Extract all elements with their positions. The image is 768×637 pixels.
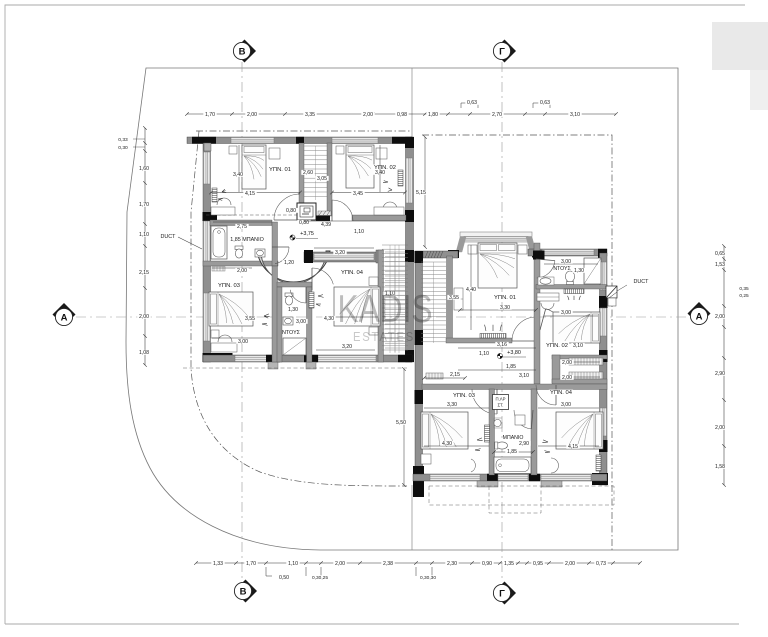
svg-text:0,73: 0,73 [596, 561, 606, 567]
svg-text:4,15: 4,15 [568, 444, 578, 450]
svg-text:2,15: 2,15 [139, 270, 149, 276]
svg-text:5,50: 5,50 [396, 420, 406, 426]
svg-text:2,00: 2,00 [562, 375, 572, 381]
svg-text:0,33: 0,33 [118, 137, 128, 143]
svg-text:3,10: 3,10 [573, 343, 583, 349]
svg-text:2,15: 2,15 [450, 372, 460, 378]
svg-text:3,00: 3,00 [561, 402, 571, 408]
svg-text:3,45: 3,45 [353, 191, 363, 197]
svg-text:2,00: 2,00 [335, 561, 345, 567]
svg-text:0,30,30: 0,30,30 [420, 575, 436, 581]
svg-text:0,35: 0,35 [739, 286, 749, 292]
svg-text:2,75: 2,75 [237, 224, 247, 230]
svg-text:4,39: 4,39 [321, 222, 331, 228]
svg-text:1,10: 1,10 [288, 561, 298, 567]
svg-text:1,10: 1,10 [139, 232, 149, 238]
svg-text:0,50: 0,50 [279, 575, 289, 581]
svg-text:0,30: 0,30 [118, 145, 128, 151]
svg-text:3,55: 3,55 [245, 316, 255, 322]
svg-text:4,30: 4,30 [442, 441, 452, 447]
svg-text:Γ: Γ [499, 588, 505, 599]
svg-text:A: A [61, 312, 68, 323]
svg-text:0,80: 0,80 [286, 208, 296, 214]
svg-text:2,00: 2,00 [139, 314, 149, 320]
svg-text:2,00: 2,00 [562, 360, 572, 366]
svg-text:2,00: 2,00 [715, 314, 725, 320]
svg-text:1,20: 1,20 [284, 260, 294, 266]
svg-text:1,53: 1,53 [715, 262, 725, 268]
svg-text:3,00: 3,00 [238, 339, 248, 345]
svg-text:3,16: 3,16 [497, 342, 507, 348]
svg-text:1,35: 1,35 [504, 561, 514, 567]
svg-text:0,98: 0,98 [397, 112, 407, 118]
svg-text:1,60: 1,60 [139, 166, 149, 172]
svg-text:DUCT: DUCT [161, 234, 177, 240]
svg-text:ΣΤ.: ΣΤ. [497, 403, 503, 408]
svg-text:3,00: 3,00 [561, 259, 571, 265]
svg-text:1,85 ΜΠΑΝΙΟ: 1,85 ΜΠΑΝΙΟ [230, 237, 264, 243]
svg-text:3,55: 3,55 [449, 295, 459, 301]
svg-text:1,85: 1,85 [506, 364, 516, 370]
svg-text:1,30: 1,30 [288, 307, 298, 313]
svg-text:B: B [240, 586, 247, 597]
svg-text:4,15: 4,15 [245, 191, 255, 197]
svg-text:0,63: 0,63 [467, 100, 477, 106]
svg-text:2,30: 2,30 [447, 561, 457, 567]
svg-text:1,80: 1,80 [428, 112, 438, 118]
svg-text:+3,80: +3,80 [507, 350, 521, 356]
svg-text:1,70: 1,70 [246, 561, 256, 567]
svg-text:3,00: 3,00 [296, 319, 306, 325]
svg-text:ΥΠΝ. 03: ΥΠΝ. 03 [218, 283, 240, 289]
svg-text:B: B [239, 46, 246, 57]
svg-text:4,30: 4,30 [324, 316, 334, 322]
svg-text:ΥΠΝ. 01: ΥΠΝ. 01 [494, 295, 516, 301]
svg-text:2,38: 2,38 [383, 561, 393, 567]
svg-text:ΥΠΝ. 03: ΥΠΝ. 03 [453, 393, 475, 399]
svg-text:3,10: 3,10 [519, 373, 529, 379]
svg-text:A: A [696, 311, 703, 322]
svg-text:ESTATES: ESTATES [353, 330, 415, 344]
svg-text:ΝΤΟΥΣ: ΝΤΟΥΣ [553, 266, 570, 272]
svg-text:ΝΤΟΥΣ: ΝΤΟΥΣ [282, 330, 301, 336]
svg-text:1,30: 1,30 [574, 268, 584, 274]
svg-text:2,00: 2,00 [715, 425, 725, 431]
svg-text:4,40: 4,40 [466, 287, 476, 293]
svg-text:1,58: 1,58 [715, 464, 725, 470]
svg-text:2,00: 2,00 [565, 561, 575, 567]
svg-text:2,00: 2,00 [247, 112, 257, 118]
svg-text:0,65: 0,65 [715, 251, 725, 257]
svg-text:0,90: 0,90 [482, 561, 492, 567]
svg-text:Γ: Γ [499, 46, 505, 57]
svg-text:DUCT: DUCT [634, 279, 650, 285]
svg-text:3,30: 3,30 [500, 305, 510, 311]
svg-text:1,70: 1,70 [205, 112, 215, 118]
svg-text:3,00: 3,00 [561, 310, 571, 316]
svg-text:2,00: 2,00 [237, 268, 247, 274]
svg-text:2,90: 2,90 [519, 441, 529, 447]
svg-text:1,08: 1,08 [139, 350, 149, 356]
svg-text:0,30,25: 0,30,25 [312, 575, 328, 581]
svg-text:1,70: 1,70 [139, 202, 149, 208]
svg-text:2,90: 2,90 [715, 371, 725, 377]
svg-text:+3,75: +3,75 [300, 231, 314, 237]
svg-text:1,10: 1,10 [354, 229, 364, 235]
svg-text:KADIS: KADIS [338, 288, 433, 331]
svg-text:3,20: 3,20 [335, 250, 345, 256]
svg-text:ΥΠΝ. 04: ΥΠΝ. 04 [550, 390, 573, 396]
svg-text:3,05: 3,05 [317, 176, 327, 182]
svg-text:3,30: 3,30 [447, 402, 457, 408]
svg-text:1,10: 1,10 [479, 351, 489, 357]
svg-text:1,33: 1,33 [213, 561, 223, 567]
svg-text:3,20: 3,20 [342, 344, 352, 350]
svg-text:3,40: 3,40 [233, 172, 243, 178]
svg-text:3,10: 3,10 [570, 112, 580, 118]
svg-text:1,85: 1,85 [507, 449, 517, 455]
svg-text:0,95: 0,95 [533, 561, 543, 567]
svg-text:2,60: 2,60 [303, 170, 313, 176]
svg-text:5,15: 5,15 [416, 190, 426, 196]
svg-text:Π.ΛΡ: Π.ΛΡ [495, 397, 505, 402]
svg-text:2,70: 2,70 [492, 112, 502, 118]
svg-text:0,63: 0,63 [540, 100, 550, 106]
svg-text:ΥΠΝ. 01: ΥΠΝ. 01 [269, 167, 291, 173]
svg-text:3,35: 3,35 [305, 112, 315, 118]
svg-text:ΥΠΝ. 02: ΥΠΝ. 02 [546, 343, 568, 349]
svg-text:ΥΠΝ. 04: ΥΠΝ. 04 [341, 270, 364, 276]
svg-text:0,25: 0,25 [739, 293, 749, 299]
svg-text:2,00: 2,00 [363, 112, 373, 118]
